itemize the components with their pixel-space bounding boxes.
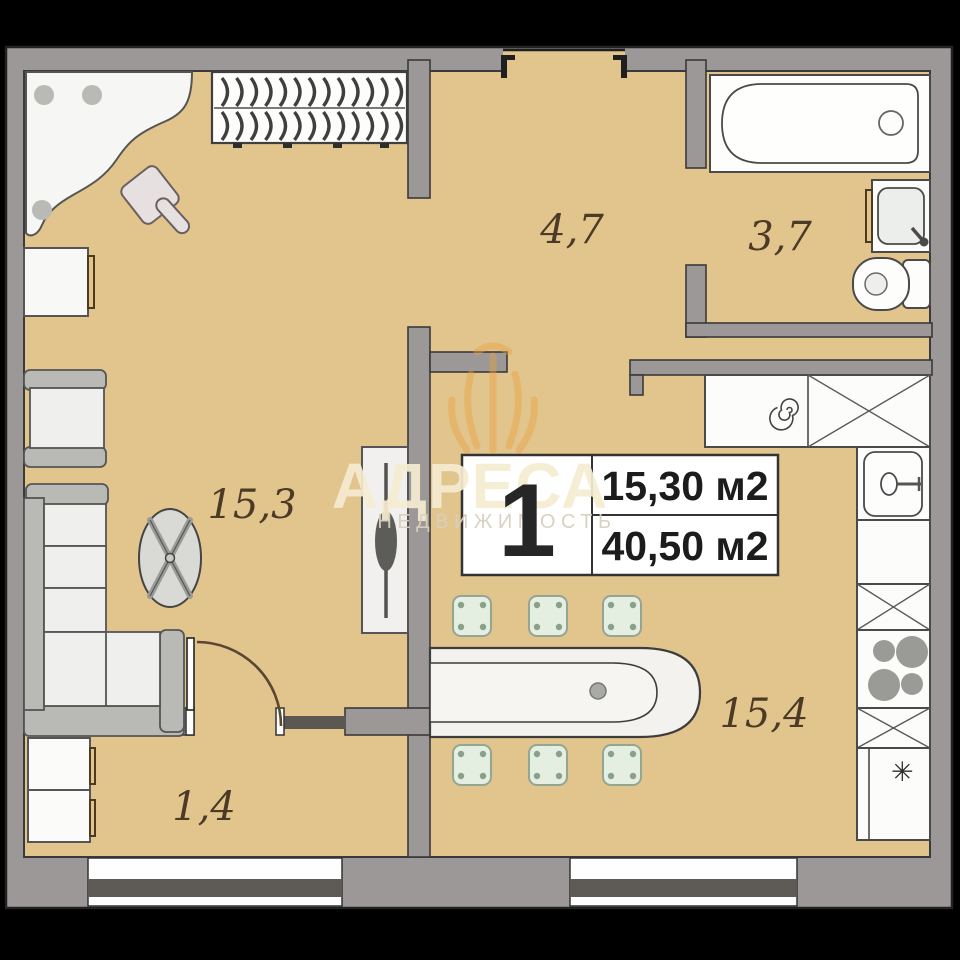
sofa-backrest	[24, 498, 44, 710]
burner	[873, 640, 895, 662]
room-label-living: 15,3	[207, 482, 296, 528]
partition-hall-living-upper	[408, 60, 430, 198]
living-area-value: 15,30 м2	[601, 463, 768, 509]
entry-cabinets	[28, 738, 95, 842]
room-label-entry: 1,4	[172, 784, 236, 830]
wall-right	[930, 47, 952, 908]
window-right	[570, 858, 797, 906]
bathtub-drain	[879, 111, 903, 135]
table-leg	[590, 683, 606, 699]
toilet	[853, 258, 930, 310]
partition-bathroom-upper	[686, 60, 706, 168]
kitchen-sink-unit	[857, 447, 930, 520]
room-label-bathroom: 3,7	[748, 214, 812, 260]
bathtub	[710, 75, 930, 172]
door-jamb	[186, 708, 194, 735]
wall-left	[6, 47, 24, 908]
kitchen-cabinet-x-lower	[857, 708, 930, 748]
partition-entry-right	[345, 708, 430, 735]
kitchen-counter-top	[705, 375, 930, 447]
desk-grommet	[82, 85, 102, 105]
unit-number: 1	[498, 463, 556, 579]
room-label-kitchen: 15,4	[719, 691, 808, 737]
kitchen-cabinet-x-upper	[857, 584, 930, 630]
floor-plan: ✳ АДРЕСА НЕДВИЖИМОСТЬ 1 15,30 м2 40,50 м…	[0, 0, 960, 960]
armchair	[24, 370, 106, 467]
sofa-armrest-right	[160, 630, 184, 732]
bar-table	[430, 648, 700, 737]
partition-kitchen-stub	[630, 375, 643, 395]
fridge: ✳	[857, 748, 930, 840]
desk-grommet	[32, 200, 52, 220]
bathroom-sink	[866, 180, 930, 252]
kitchen-cabinet	[857, 520, 930, 584]
watermark-subtitle: НЕДВИЖИМОСТЬ	[377, 511, 616, 533]
partition-living-kitchen	[408, 327, 430, 857]
fridge-snowflake-icon: ✳	[891, 757, 914, 787]
burner	[868, 669, 900, 701]
burner	[901, 673, 923, 695]
total-area-value: 40,50 м2	[601, 523, 768, 569]
desk-grommet	[34, 85, 54, 105]
round-table	[139, 509, 201, 607]
entry-threshold	[284, 716, 346, 729]
burner	[896, 636, 928, 668]
room-label-hall: 4,7	[539, 207, 604, 253]
cabinet-under-desk	[24, 248, 94, 316]
wall-top	[6, 47, 952, 72]
partition-kitchen-top	[630, 360, 932, 375]
door-leaf	[187, 638, 194, 710]
stove	[857, 630, 930, 708]
window-left	[88, 858, 342, 906]
wardrobe	[212, 72, 407, 148]
partition-below-bathroom	[686, 323, 932, 337]
